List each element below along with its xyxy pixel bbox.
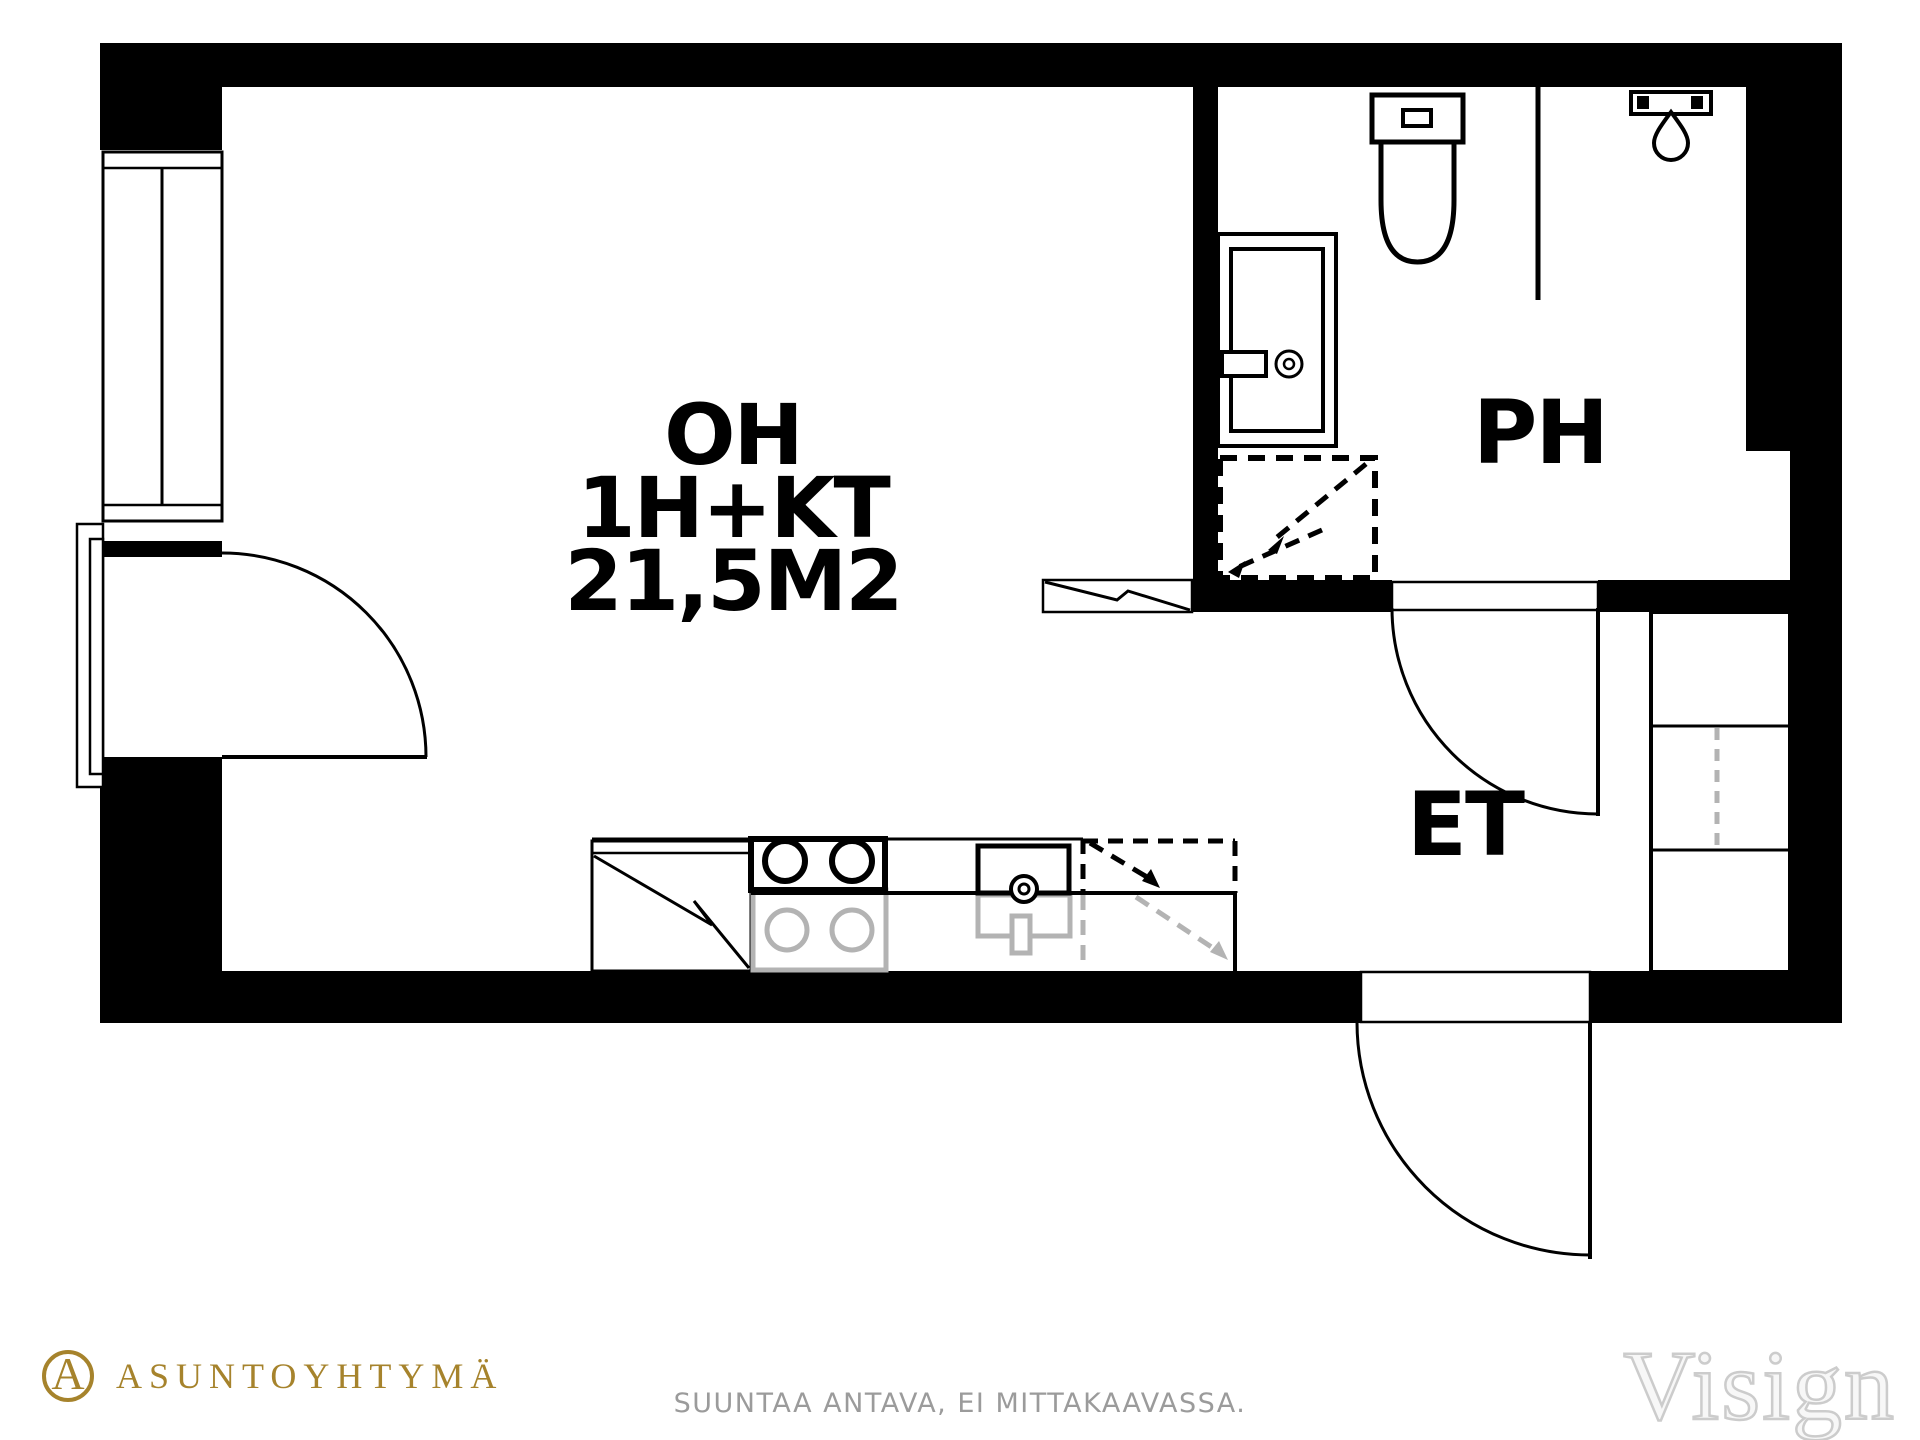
watermark-logo: Visign [1623, 1336, 1896, 1436]
counter-stub [1043, 580, 1192, 612]
balcony-door [222, 553, 427, 757]
apartment-area: 21,5M2 [433, 545, 1033, 618]
washing-machine-reservation [1220, 458, 1375, 578]
kitchen-sink-icon [978, 846, 1069, 902]
window [103, 152, 222, 521]
shower-head-icon [1631, 92, 1711, 160]
wardrobe [1651, 612, 1790, 972]
living-room-label: OH 1H+KT 21,5M2 [433, 399, 1033, 618]
entry-label: ET [1365, 788, 1565, 861]
bathroom-sink-icon [1218, 234, 1336, 446]
fridge-icon [592, 841, 751, 971]
balcony-threshold [77, 524, 103, 787]
bathroom-label: PH [1440, 396, 1640, 469]
toilet-icon [1372, 95, 1463, 262]
floor-plan-canvas: OH 1H+KT 21,5M2 PH ET A ASUNTOYHTYMÄ SUU… [0, 0, 1920, 1440]
dishwasher-reservation [1083, 895, 1228, 962]
entrance-door [1357, 972, 1590, 1259]
upper-cabinet-reservation [1083, 839, 1235, 893]
floor-plan-drawing [0, 0, 1920, 1440]
stove-icon [751, 839, 886, 970]
